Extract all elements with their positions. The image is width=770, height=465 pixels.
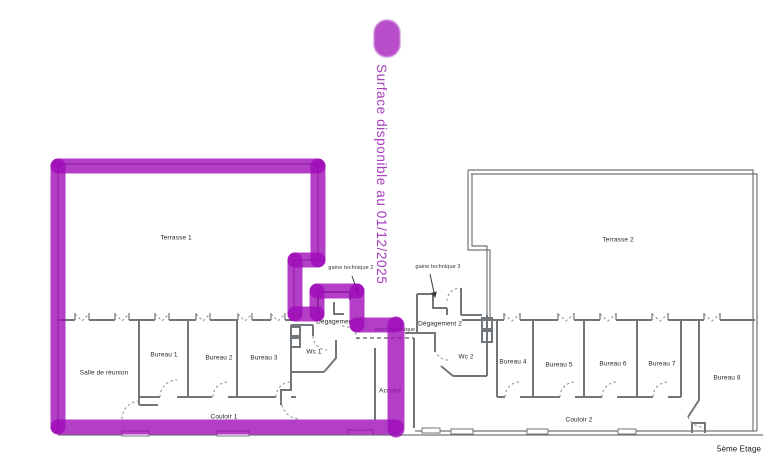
label-bureau-6: Bureau 6 — [599, 361, 626, 368]
label-couloir-1: Couloir 1 — [211, 414, 238, 421]
label-degagement-1: Dégagement 1 — [316, 319, 360, 326]
label-accueil: Accueil — [379, 388, 401, 395]
label-gaine-technique: gaine technique — [375, 327, 415, 333]
label-wc-2: Wc 2 — [458, 354, 473, 361]
label-bureau-3: Bureau 3 — [250, 355, 277, 362]
label-gaine-technique-2: gaine technique 2 — [328, 265, 373, 271]
label-couloir-2: Couloir 2 — [566, 417, 593, 424]
label-terrasse-2: Terrasse 2 — [602, 237, 633, 244]
label-bureau-1: Bureau 1 — [150, 352, 177, 359]
label-bureau-2: Bureau 2 — [205, 355, 232, 362]
availability-caption: Surface disponible au 01/12/2025 — [374, 64, 389, 284]
label-bureau-5: Bureau 5 — [545, 362, 572, 369]
label-bureau-8: Bureau 8 — [713, 375, 740, 382]
label-floor-note: 5ème Etage — [717, 445, 761, 454]
label-bureau-4: Bureau 4 — [499, 359, 526, 366]
label-wc-1: Wc 1 — [306, 349, 321, 356]
label-terrasse-1: Terrasse 1 — [160, 235, 191, 242]
label-degagement-2: Dégagement 2 — [418, 321, 462, 328]
label-gaine-technique-3: gaine technique 3 — [415, 264, 460, 270]
label-salle-reunion: Salle de réunion — [80, 370, 129, 377]
floorplan-page: Terrasse 1 Terrasse 2 Salle de réunion B… — [0, 0, 770, 465]
label-bureau-7: Bureau 7 — [648, 361, 675, 368]
